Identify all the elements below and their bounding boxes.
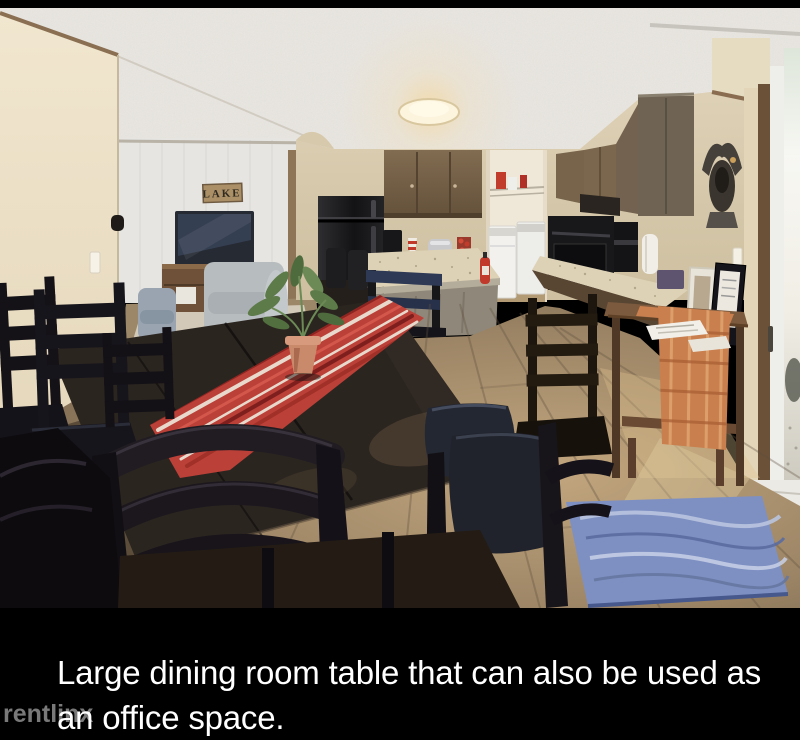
ceiling-light (399, 99, 459, 125)
paper-towel-roll (642, 234, 658, 274)
light-switch-right (733, 248, 742, 266)
svg-text:LAKE: LAKE (202, 187, 242, 200)
tissue-box (657, 270, 684, 289)
detergent-bottle (496, 172, 506, 189)
upper-cabinets (384, 150, 482, 218)
caption-line-1: Large dining room table that can also be… (57, 650, 800, 695)
listing-photo: LAKE (0, 8, 800, 608)
photo-caption: Large dining room table that can also be… (0, 650, 800, 740)
espresso-machine (614, 222, 638, 272)
light-switch (90, 252, 100, 273)
thermostat (111, 215, 124, 231)
caption-line-2: an office space. (57, 695, 800, 740)
door-handle (768, 326, 773, 352)
lake-sign: LAKE (202, 183, 242, 202)
